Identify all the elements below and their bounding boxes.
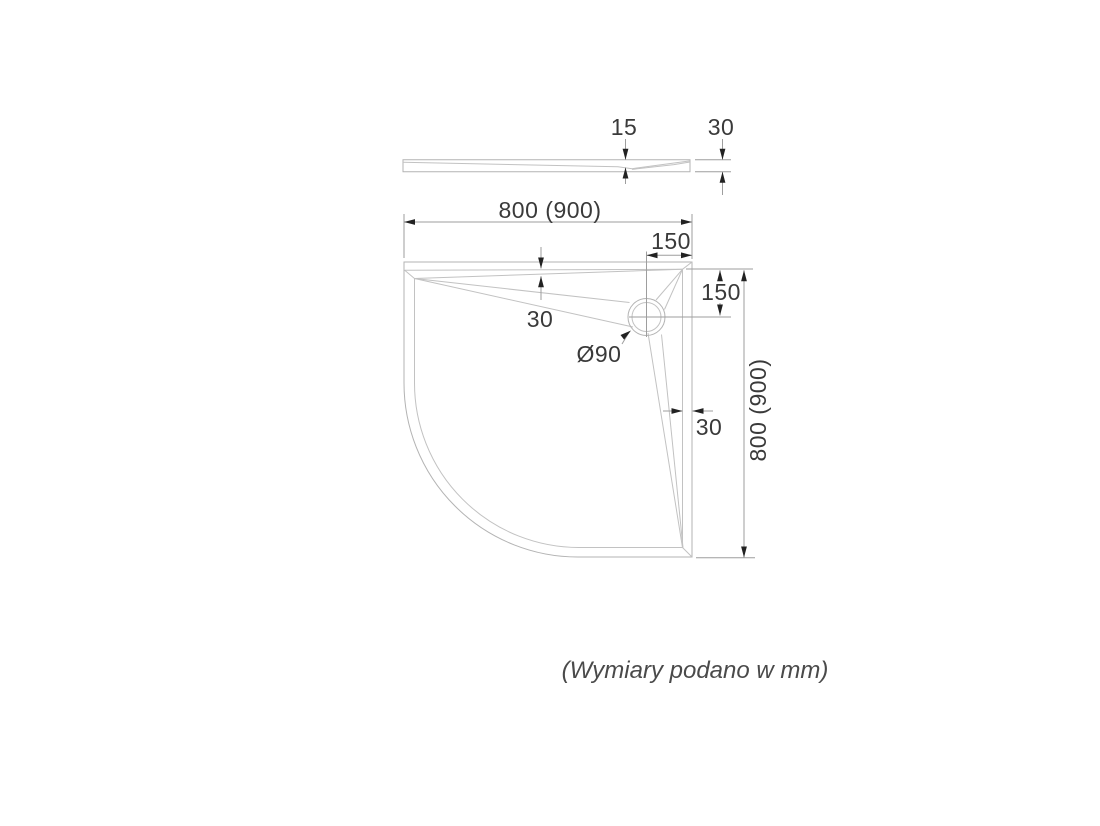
dimension-label-rim-width-right: 30 xyxy=(696,414,723,440)
technical-drawing-page: 15 30 xyxy=(0,0,1100,826)
dimension-label-edge-thickness: 15 xyxy=(611,114,638,140)
arrowhead-left-icon xyxy=(404,219,415,225)
arrowhead-right-icon xyxy=(672,408,683,414)
arrowhead-down-icon xyxy=(741,547,747,558)
dimension-rim-width-top: 30 xyxy=(527,247,554,332)
profile-drain-recess-line xyxy=(632,162,690,169)
slope-line-from-top-right-2 xyxy=(665,269,683,309)
arrowhead-up-icon xyxy=(538,276,544,287)
tray-inner-arc xyxy=(415,383,580,548)
slope-line-from-top-right-1 xyxy=(656,269,683,300)
floor-top-edge-line xyxy=(415,269,683,278)
arrowhead-right-icon xyxy=(681,219,692,225)
extension-lines xyxy=(695,160,731,172)
dimension-profile-30: 30 xyxy=(695,114,734,195)
dimension-label-drain-offset-h: 150 xyxy=(651,228,691,254)
dimension-label-width: 800 (900) xyxy=(499,197,602,223)
arrowhead-down-icon xyxy=(623,149,629,160)
arrowhead-up-icon xyxy=(741,270,747,281)
arrowhead-up-icon xyxy=(720,172,726,183)
shower-tray-dimension-drawing: 15 30 xyxy=(0,0,1100,826)
dimension-drain-diameter: Ø90 xyxy=(577,331,631,368)
dimension-profile-15: 15 xyxy=(611,114,638,184)
slope-line-from-top-left-1 xyxy=(415,279,630,303)
profile-view: 15 30 xyxy=(403,114,734,195)
rim-corner-mitre-top-right xyxy=(683,262,693,269)
dimension-label-drain-offset-v: 150 xyxy=(701,279,741,305)
arrowhead-up-icon xyxy=(623,168,629,179)
plan-view: 800 (900) 150 30 Ø90 xyxy=(404,197,771,558)
dimension-label-rim-width-top: 30 xyxy=(527,306,554,332)
rim-corner-mitre-top-left xyxy=(405,270,415,278)
arrowhead-down-icon xyxy=(720,149,726,160)
units-note: (Wymiary podano w mm) xyxy=(562,657,829,684)
dimension-label-total-height: 30 xyxy=(708,114,735,140)
slope-line-from-top-left-2 xyxy=(415,279,634,328)
arrowhead-down-icon xyxy=(717,305,723,316)
slope-line-to-bottom-right-1 xyxy=(648,333,683,548)
dimension-width-800: 800 (900) xyxy=(404,197,692,258)
dimension-label-height: 800 (900) xyxy=(745,359,771,462)
rim-corner-mitre-bottom-right xyxy=(683,548,693,558)
dimension-label-drain-diameter: Ø90 xyxy=(577,341,622,367)
dimension-drain-offset-horizontal: 150 xyxy=(647,228,693,259)
tray-rim-inner-line-top xyxy=(405,269,683,270)
slope-line-to-bottom-right-2 xyxy=(662,335,684,548)
arrowhead-down-icon xyxy=(538,258,544,269)
